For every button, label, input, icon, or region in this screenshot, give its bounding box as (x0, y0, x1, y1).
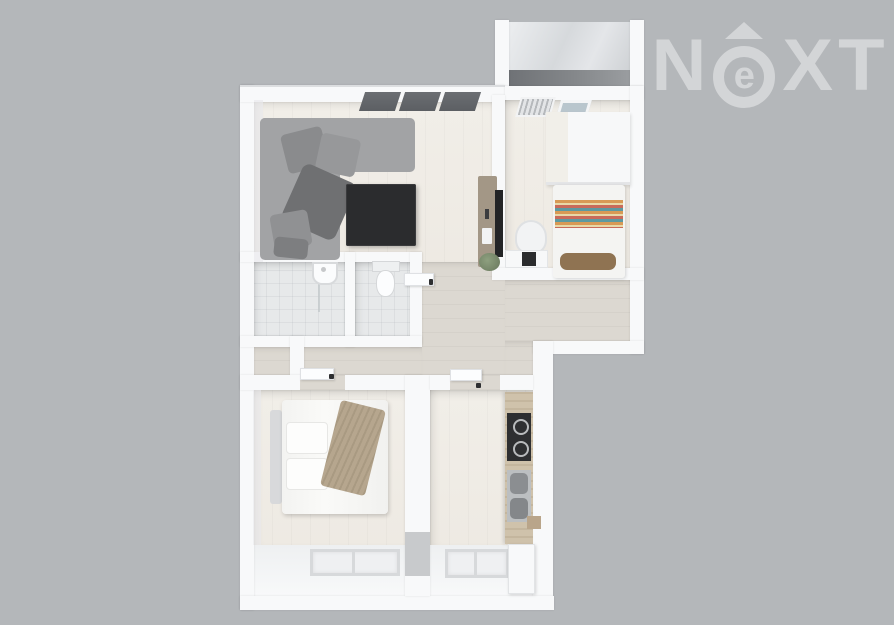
logo-letter-t: T (838, 30, 884, 103)
ceiling-window-3 (439, 92, 481, 111)
wall-bath-right (410, 252, 422, 347)
headboard (270, 410, 282, 504)
logo-letter-e-mark: e (711, 20, 777, 112)
main-bedroom-door-handle (329, 374, 334, 379)
kitchen-door-handle (476, 383, 481, 388)
kitchen-wood-shelf (527, 516, 541, 529)
double-bed (270, 400, 388, 514)
wardrobe (546, 112, 630, 185)
balcony-wall-left (495, 20, 509, 86)
main-bedroom-window (310, 549, 400, 576)
floorplan-screenshot: { "canvas": {"width": 894, "height": 625… (0, 0, 894, 625)
kitchen-door (450, 369, 482, 381)
sofa-cushion (273, 236, 309, 259)
living-room-door-handle (429, 279, 433, 285)
wall-bath-bottom (240, 336, 422, 347)
next-logo: N e X T (650, 20, 886, 112)
wallface-mainbed-left (253, 390, 261, 545)
coffee-table (346, 184, 416, 246)
desk-chair (515, 220, 547, 254)
washbasin (312, 262, 338, 285)
hallway-floor-left (253, 347, 422, 375)
plant (479, 253, 500, 271)
wall-bath-divider (345, 252, 355, 347)
balcony-window-band (509, 70, 630, 86)
cooktop (507, 413, 531, 461)
desk-computer (522, 252, 536, 266)
hallway-floor-right (505, 280, 630, 341)
desk (505, 250, 548, 268)
ceiling-window-2 (399, 92, 441, 111)
ceiling-window-1 (359, 92, 401, 111)
outer-wall-right-lower (533, 341, 553, 596)
single-bed-pillow (560, 253, 616, 270)
outer-wall-right-upper (630, 86, 644, 354)
bed-pillow-1 (286, 422, 328, 454)
logo-letter-n: N (651, 30, 706, 103)
balcony-interior (509, 22, 630, 70)
kitchen-cabinet (508, 544, 535, 594)
logo-letter-e: e (734, 57, 755, 95)
logo-letter-x: X (782, 30, 833, 103)
kitchen-window (445, 549, 509, 578)
toilet (372, 261, 398, 297)
wall-tv (495, 190, 503, 257)
single-bed (553, 185, 625, 278)
logo-roof-triangle-icon (725, 22, 763, 39)
sideboard-items (482, 228, 492, 244)
logo-ring-icon: e (713, 46, 775, 108)
outer-wall-left (240, 85, 254, 610)
striped-blanket (555, 200, 623, 228)
wall-bedroom-kitchen-endface (405, 532, 430, 576)
kitchen-sink (507, 470, 531, 522)
outer-wall-bottom (240, 596, 554, 610)
balcony-wall-right (630, 20, 644, 86)
